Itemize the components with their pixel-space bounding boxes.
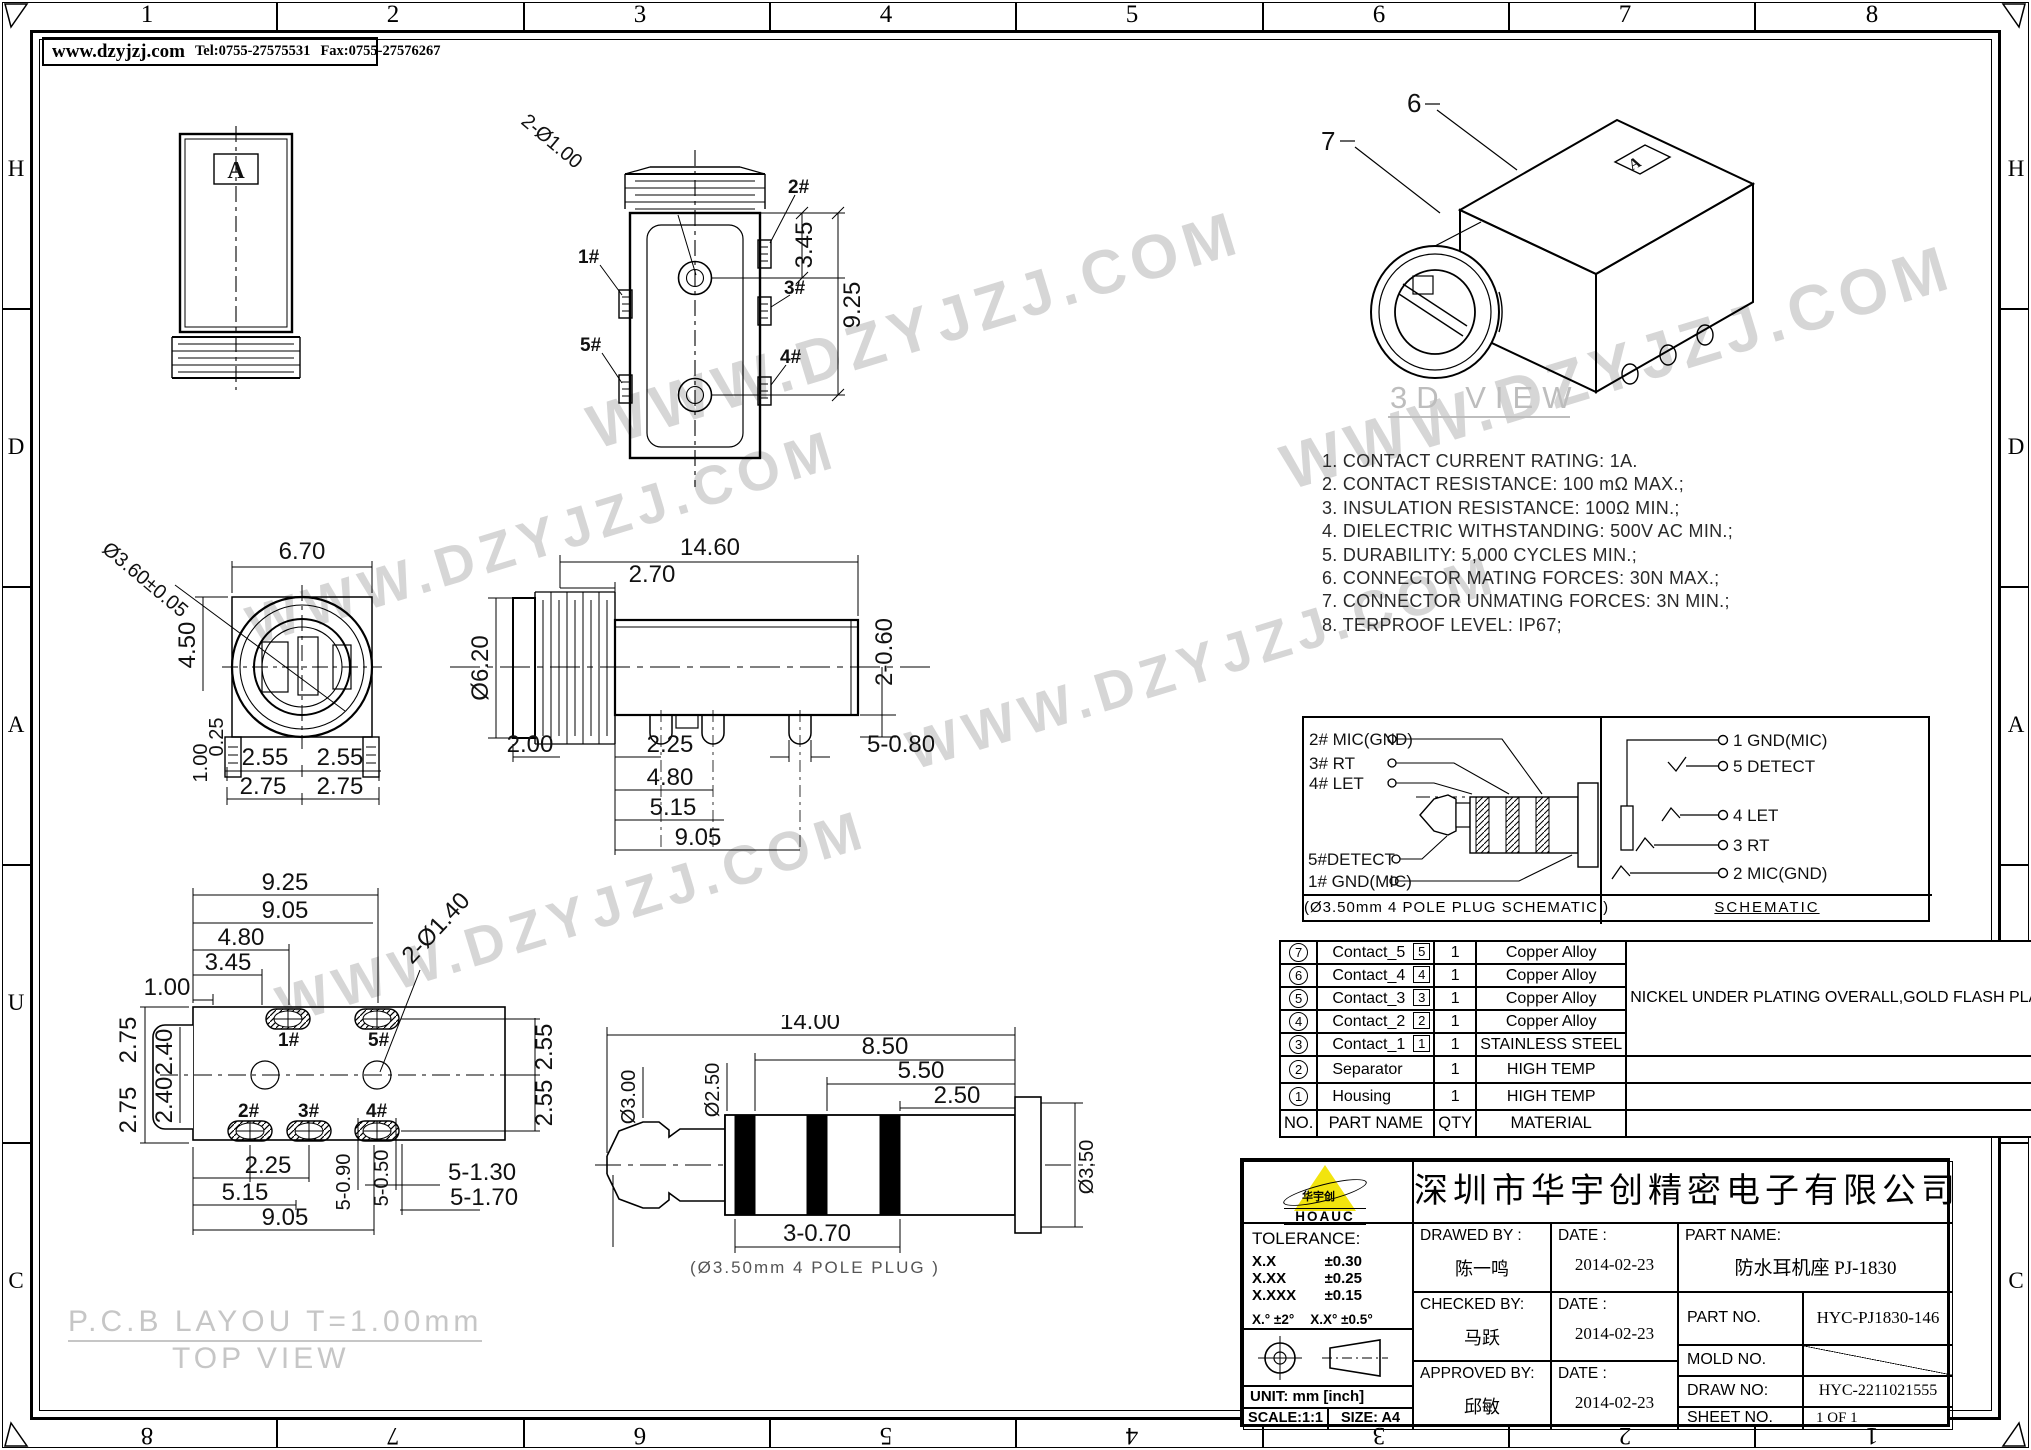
pcb-view-title: P.C.B LAYOU T=1.00mm (68, 1305, 482, 1339)
plug-label-3: 3# RT (1309, 754, 1355, 773)
dim-side-d2: 2.25 (647, 731, 694, 758)
zone-number-top: 2 (380, 1, 406, 29)
part-material: HIGH TEMP (1476, 1056, 1626, 1083)
zone-number-bottom: 4 (1119, 1421, 1145, 1449)
top-view-drawing: A (160, 122, 315, 397)
draw-no-value: HYC-2211021555 (1803, 1376, 1953, 1407)
zone-number-top: 7 (1612, 1, 1638, 29)
note-item: 3. INSULATION RESISTANCE: 100Ω MIN.; (1322, 497, 1733, 520)
view-title-3d: 3D VIEW (1390, 380, 1580, 415)
plug-label-2: 2# MIC(GND) (1309, 730, 1413, 749)
pin-label-1: 1# (578, 247, 600, 268)
scale-cell: SCALE:1:1 (1243, 1408, 1328, 1430)
dim-circle-b2: 2.55 (317, 744, 364, 771)
part-no-label: PART NO. (1678, 1292, 1803, 1345)
circuit-label-4: 4 LET (1733, 806, 1778, 825)
tol-key: X.X (1252, 1253, 1276, 1270)
col-header-description: DESCRIPTION (1626, 1110, 2031, 1137)
zone-number-bottom: 7 (380, 1421, 406, 1449)
dim-circle-off1: 1.00 (190, 744, 212, 783)
part-description: BLACK,UL94V-0 (1626, 1056, 2031, 1083)
projection-symbols (1252, 1336, 1402, 1380)
zone-letter-right: H (2004, 156, 2028, 182)
date1-value: 2014-02-23 (1552, 1255, 1677, 1275)
dim-pcb-r1: 2.55 (531, 1024, 558, 1071)
dim-side-d3: 4.80 (647, 764, 694, 791)
part-qty: 1 (1434, 1010, 1476, 1033)
drawed-by-label: DRAWED BY : (1414, 1224, 1550, 1245)
note-item: 4. DIELECTRIC WITHSTANDING: 500V AC MIN.… (1322, 520, 1733, 543)
zone-letter-right: C (2004, 1268, 2028, 1294)
company-header: www.dzyjzj.com Tel:0755-27575531 Fax:075… (42, 37, 378, 66)
company-website: www.dzyjzj.com (52, 41, 185, 63)
plug-label-1: 1# GND(MIC) (1308, 872, 1412, 891)
notes-list: 1. CONTACT CURRENT RATING: 1A. 2. CONTAC… (1322, 450, 1733, 637)
plug-drawing: 14.00 8.50 5.50 2.50 Ø3.00 Ø2.50 Ø3.50 3… (585, 1015, 1105, 1285)
approved-by-name: 邱敏 (1414, 1393, 1550, 1419)
dim-circle-width: 6.70 (279, 538, 326, 565)
corner-mark (4, 1421, 30, 1447)
dim-pcb-w4: 3.45 (205, 949, 252, 976)
mold-no-blank (1803, 1345, 1953, 1376)
logo-mark-a: A (227, 158, 245, 184)
title-block: 华宇创 HOAUC 深圳市华宇创精密电子有限公司 TOLERANCE: X.X±… (1240, 1158, 1950, 1427)
drawed-by-name: 陈一鸣 (1414, 1255, 1550, 1281)
date1-cell: DATE : 2014-02-23 (1551, 1223, 1678, 1292)
side-view-drawing: 14.60 2.70 Ø6.20 2-0.60 2.00 2.25 4.80 5… (430, 500, 970, 870)
unit-cell: UNIT: mm [inch] (1243, 1386, 1413, 1408)
logo-text: 华宇创 (1302, 1188, 1335, 1204)
pcb-view-title-text: P.C.B LAYOU T=1.00mm (68, 1305, 482, 1342)
row-no: 6 (1289, 966, 1308, 985)
dim-pcb-b2: 5.15 (222, 1179, 269, 1206)
tol-key: X.XX (1252, 1270, 1286, 1287)
callout-7: 7 (1321, 126, 1335, 156)
dim-side-d4: 5.15 (650, 794, 697, 821)
zone-number-bottom: 5 (873, 1421, 899, 1449)
tol-val: ±0.15 (1325, 1287, 1362, 1304)
date2-value: 2014-02-23 (1552, 1324, 1677, 1344)
pin-label-5: 5# (580, 335, 602, 356)
dim-plug-band: 3-0.70 (783, 1220, 851, 1247)
part-name: Contact_5 (1332, 944, 1405, 961)
zone-number-bottom: 6 (627, 1421, 653, 1449)
dim-pcb-l4: 2.40 (151, 1077, 178, 1124)
circuit-label-2: 2 MIC(GND) (1733, 864, 1827, 883)
dim-pcb-v1: 5-0.90 (333, 1154, 355, 1211)
zone-number-bottom: 8 (134, 1421, 160, 1449)
date2-cell: DATE : 2014-02-23 (1551, 1292, 1678, 1361)
part-material: HIGH TEMP (1476, 1083, 1626, 1110)
dim-plug-dia1: Ø3.00 (618, 1070, 640, 1124)
zone-number-top: 1 (134, 1, 160, 29)
zone-letter-right: A (2004, 712, 2028, 738)
dim-plug-d3: 5.50 (898, 1057, 945, 1084)
dim-side-len: 14.60 (680, 534, 740, 561)
corner-mark (2001, 1421, 2027, 1447)
zone-letter-left: A (4, 712, 28, 738)
part-qty: 1 (1434, 987, 1476, 1010)
dim-front-925: 9.25 (839, 282, 866, 329)
circuit-label-1: 1 GND(MIC) (1733, 731, 1827, 750)
part-name: Contact_1 (1332, 1036, 1405, 1053)
callout-6: 6 (1407, 88, 1421, 118)
dim-pcb-w1: 9.25 (262, 869, 309, 896)
zone-letter-left: D (4, 434, 28, 460)
logo-cell: 华宇创 HOAUC (1243, 1161, 1413, 1223)
dim-pcb-w3: 4.80 (218, 924, 265, 951)
part-tag: 1 (1413, 1035, 1430, 1052)
part-material: Copper Alloy (1476, 941, 1626, 964)
pcb-layout-drawing: 9.25 9.05 4.80 3.45 1.00 2.75 2.40 2.75 … (60, 860, 605, 1260)
dim-side-tail: 2-0.60 (871, 618, 898, 686)
company-name: 深圳市华宇创精密电子有限公司 (1413, 1161, 1953, 1223)
date-label: DATE : (1552, 1293, 1677, 1314)
dim-plug-d2: 8.50 (862, 1033, 909, 1060)
circuit-label-3: 3 RT (1733, 836, 1770, 855)
dim-pcb-w2: 9.05 (262, 897, 309, 924)
part-tag: 4 (1413, 966, 1430, 983)
sheet-no-label: SHEET NO. (1678, 1407, 1803, 1430)
plug-schematic-drawing: 2# MIC(GND) 3# RT 4# LET 5#DETECT 1# GND… (1304, 718, 1600, 898)
plug-caption: (Ø3.50mm 4 POLE PLUG ) (690, 1258, 940, 1277)
tol-val: ±0.30 (1325, 1253, 1362, 1270)
sheet-no-value: 1 OF 1 (1803, 1407, 1953, 1430)
dim-plug-dia3: Ø3.50 (1076, 1140, 1098, 1194)
checked-by-label: CHECKED BY: (1414, 1293, 1550, 1314)
dim-pcb-b1: 2.25 (245, 1152, 292, 1179)
part-description-merged: NICKEL UNDER PLATING OVERALL,GOLD FLASH … (1626, 941, 2031, 1056)
tolerance-title: TOLERANCE: (1252, 1229, 1404, 1249)
part-name-cell: PART NAME: 防水耳机座 PJ-1830 (1678, 1223, 1953, 1292)
dim-pcb-l1: 2.75 (115, 1017, 142, 1064)
drawed-by-cell: DRAWED BY : 陈一鸣 (1413, 1223, 1551, 1292)
dim-side-thread: 2.70 (629, 561, 676, 588)
table-row: 7 Contact_55 1 Copper Alloy NICKEL UNDER… (1280, 941, 2031, 964)
part-qty: 1 (1434, 964, 1476, 987)
dim-circle-dia: Ø3.60±0.05 (98, 538, 192, 622)
note-item: 5. DURABILITY: 5,000 CYCLES MIN.; (1322, 544, 1733, 567)
logo-mark-a: A (1626, 154, 1645, 175)
part-name: Contact_4 (1332, 967, 1405, 984)
pin-label-2: 2# (788, 177, 810, 198)
dim-pcb-s2: 5-1.70 (450, 1184, 518, 1211)
pin-label-4: 4# (780, 347, 802, 368)
row-no: 7 (1289, 943, 1308, 962)
pad-label-5: 5# (368, 1030, 390, 1051)
part-tag: 5 (1413, 943, 1430, 960)
col-header-no: NO. (1280, 1110, 1317, 1137)
part-tag: 2 (1413, 1012, 1430, 1029)
note-item: 2. CONTACT RESISTANCE: 100 mΩ MAX.; (1322, 473, 1733, 496)
approved-by-label: APPROVED BY: (1414, 1362, 1550, 1383)
table-row: 1 Housing 1 HIGH TEMP BLACK,UL94V-0 (1280, 1083, 2031, 1110)
drawing-sheet: WWW.DZYJZJ.COM WWW.DZYJZJ.COM WWW.DZYJZJ… (0, 0, 2031, 1450)
row-no: 4 (1289, 1012, 1308, 1031)
tolerance-cell: TOLERANCE: X.X±0.30 X.XX±0.25 X.XXX±0.15… (1243, 1223, 1413, 1329)
company-tel: Tel:0755-27575531 (195, 43, 310, 60)
col-header-qty: QTY (1434, 1110, 1476, 1137)
tol-angle2: X.X° ±0.5° (1310, 1312, 1372, 1327)
part-name: Separator (1332, 1061, 1402, 1078)
dim-circle-b1: 2.55 (242, 744, 289, 771)
zone-number-top: 5 (1119, 1, 1145, 29)
zone-number-top: 8 (1859, 1, 1885, 29)
part-name: Contact_2 (1332, 1013, 1405, 1030)
dim-front-hole: 2-Ø1.00 (517, 110, 587, 173)
dim-pcb-l2: 2.40 (151, 1029, 178, 1076)
pin-label-3: 3# (784, 278, 806, 299)
circuit-schematic-drawing: 1 GND(MIC) 5 DETECT 4 LET 3 RT 2 MIC(GND… (1602, 718, 1932, 898)
date-label: DATE : (1552, 1224, 1677, 1245)
part-tag: 3 (1413, 989, 1430, 1006)
dim-side-dia: Ø6.20 (467, 635, 494, 700)
dim-front-345: 3.45 (791, 222, 818, 269)
zone-letter-right: D (2004, 434, 2028, 460)
circuit-label-5: 5 DETECT (1733, 757, 1815, 776)
row-no: 5 (1289, 989, 1308, 1008)
plug-label-5: 5#DETECT (1308, 850, 1395, 869)
col-header-material: MATERIAL (1476, 1110, 1626, 1137)
row-no: 2 (1289, 1060, 1308, 1079)
part-description: BLACK,UL94V-0 (1626, 1083, 2031, 1110)
draw-no-label: DRAW NO: (1678, 1376, 1803, 1407)
zone-letter-left: C (4, 1268, 28, 1294)
dim-pcb-r2: 2.55 (531, 1080, 558, 1127)
dim-pcb-hole: 2-Ø1.40 (397, 887, 476, 969)
dim-pcb-v2: 5-0.50 (371, 1150, 393, 1207)
note-item: 6. CONNECTOR MATING FORCES: 30N MAX.; (1322, 567, 1733, 590)
date3-cell: DATE : 2014-02-23 (1551, 1361, 1678, 1430)
tol-angle: X.° ±2° (1252, 1312, 1294, 1327)
dim-plug-len: 14.00 (780, 1015, 840, 1035)
zone-number-top: 6 (1366, 1, 1392, 29)
size-cell: SIZE: A4 (1328, 1408, 1413, 1430)
checked-by-cell: CHECKED BY: 马跃 (1413, 1292, 1551, 1361)
plug-label-4: 4# LET (1309, 774, 1364, 793)
table-row: 2 Separator 1 HIGH TEMP BLACK,UL94V-0 (1280, 1056, 2031, 1083)
three-d-view-drawing: 6 7 A 3D VIEW (1285, 62, 1775, 462)
part-material: STAINLESS STEEL (1476, 1033, 1626, 1056)
checked-by-name: 马跃 (1414, 1324, 1550, 1350)
date-label: DATE : (1552, 1362, 1677, 1383)
row-no: 3 (1289, 1035, 1308, 1054)
dim-pcb-w5: 1.00 (144, 974, 191, 1001)
front-view-drawing: 2-Ø1.00 1# 5# 2# 3# 4# 3.45 9.25 (450, 95, 910, 500)
schematic-panel: 2# MIC(GND) 3# RT 4# LET 5#DETECT 1# GND… (1302, 716, 1930, 922)
mold-no-label: MOLD NO. (1678, 1345, 1803, 1376)
pad-label-3: 3# (298, 1101, 320, 1122)
part-qty: 1 (1434, 941, 1476, 964)
part-no-value: HYC-PJ1830-146 (1803, 1292, 1953, 1345)
part-name: Housing (1332, 1088, 1391, 1105)
dim-plug-d4: 2.50 (934, 1082, 981, 1109)
dim-circle-b3: 2.75 (240, 773, 287, 800)
pad-label-1: 1# (278, 1030, 300, 1051)
tol-key: X.XXX (1252, 1287, 1296, 1304)
company-fax: Fax:0755-27576267 (320, 43, 440, 60)
part-material: Copper Alloy (1476, 964, 1626, 987)
dim-pcb-l3: 2.75 (115, 1087, 142, 1134)
corner-mark (2001, 3, 2027, 29)
dim-circle-height: 4.50 (174, 622, 201, 669)
parts-table: 7 Contact_55 1 Copper Alloy NICKEL UNDER… (1279, 940, 2031, 1138)
part-material: Copper Alloy (1476, 1010, 1626, 1033)
approved-by-cell: APPROVED BY: 邱敏 (1413, 1361, 1551, 1430)
circular-view-drawing: Ø3.60±0.05 6.70 4.50 0.25 1.00 2.55 2.55… (95, 515, 430, 835)
pad-label-4: 4# (366, 1101, 388, 1122)
corner-mark (4, 3, 30, 29)
row-no: 1 (1289, 1087, 1308, 1106)
zone-number-top: 3 (627, 1, 653, 29)
part-qty: 1 (1434, 1083, 1476, 1110)
part-qty: 1 (1434, 1056, 1476, 1083)
part-qty: 1 (1434, 1033, 1476, 1056)
zone-number-top: 4 (873, 1, 899, 29)
pcb-view-subtitle: TOP VIEW (172, 1342, 350, 1376)
col-header-name: PART NAME (1317, 1110, 1434, 1137)
dim-pcb-b3: 9.05 (262, 1204, 309, 1231)
tol-val: ±0.25 (1325, 1270, 1362, 1287)
projection-cell (1243, 1329, 1413, 1386)
dim-plug-dia2: Ø2.50 (702, 1063, 724, 1117)
dim-side-d1: 2.00 (507, 731, 554, 758)
part-material: Copper Alloy (1476, 987, 1626, 1010)
part-name: Contact_3 (1332, 990, 1405, 1007)
part-name-label: PART NAME: (1679, 1224, 1952, 1245)
zone-letter-left: U (4, 990, 28, 1016)
dim-circle-b4: 2.75 (317, 773, 364, 800)
zone-letter-left: H (4, 156, 28, 182)
part-name-value: 防水耳机座 PJ-1830 (1679, 1253, 1952, 1280)
note-item: 8. TERPROOF LEVEL: IP67; (1322, 614, 1733, 637)
dim-pcb-s1: 5-1.30 (448, 1159, 516, 1186)
date3-value: 2014-02-23 (1552, 1393, 1677, 1413)
note-item: 7. CONNECTOR UNMATING FORCES: 3N MIN.; (1322, 590, 1733, 613)
dim-side-d6: 5-0.80 (867, 731, 935, 758)
pad-label-2: 2# (238, 1101, 260, 1122)
note-item: 1. CONTACT CURRENT RATING: 1A. (1322, 450, 1733, 473)
dim-side-d5: 9.05 (675, 824, 722, 851)
table-header-row: NO. PART NAME QTY MATERIAL DESCRIPTION R… (1280, 1110, 2031, 1137)
